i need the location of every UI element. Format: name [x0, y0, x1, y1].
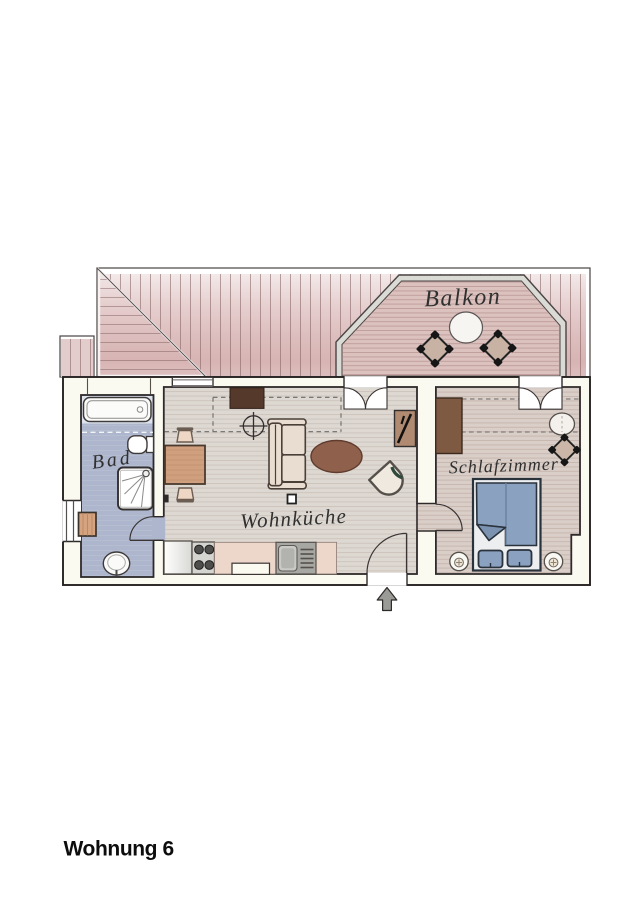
- svg-text:Wohnung 6: Wohnung 6: [64, 838, 174, 861]
- svg-text:Schlafzimmer: Schlafzimmer: [448, 454, 559, 478]
- svg-text:Balkon: Balkon: [424, 284, 502, 313]
